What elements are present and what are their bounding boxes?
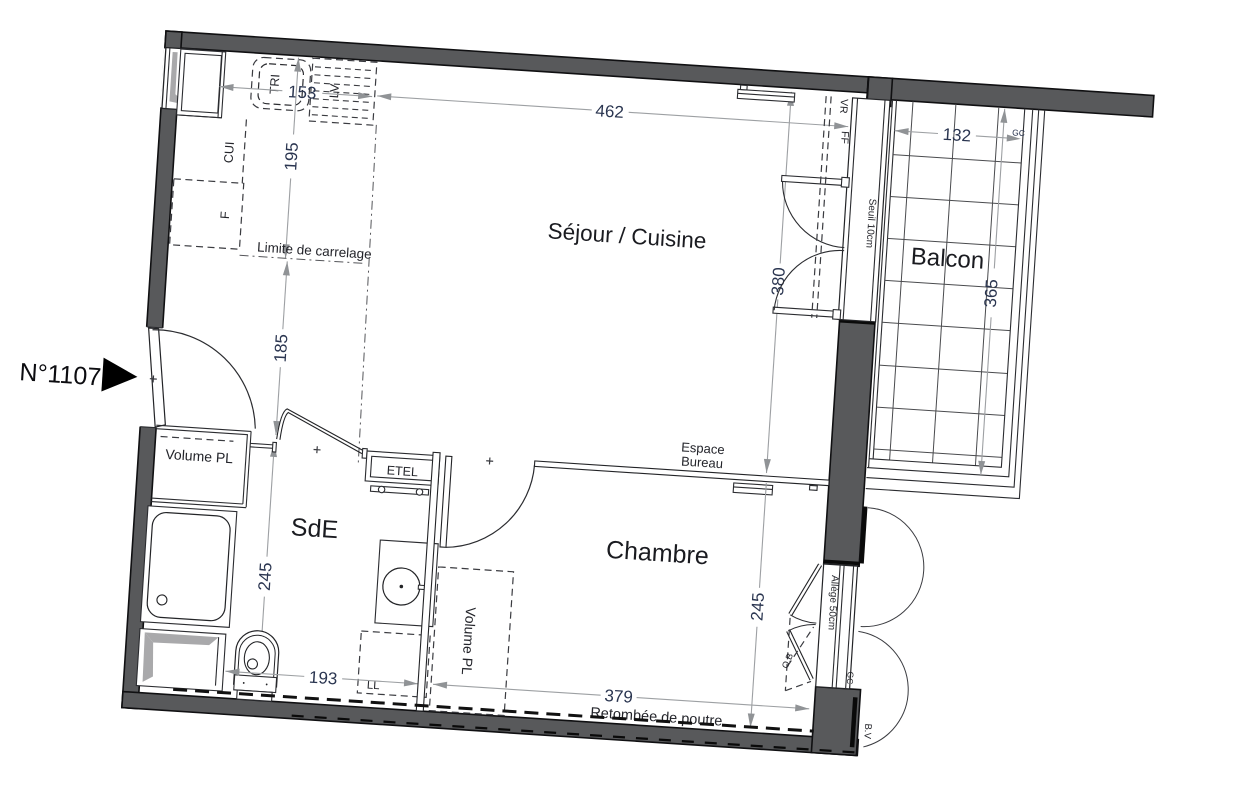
svg-text:Volume PL: Volume PL	[458, 607, 478, 676]
svg-text:245: 245	[747, 592, 768, 622]
svg-text:185: 185	[270, 333, 291, 363]
svg-text:TRI: TRI	[267, 74, 282, 95]
svg-text:LV: LV	[326, 83, 341, 99]
svg-text:Séjour / Cuisine: Séjour / Cuisine	[546, 218, 706, 253]
svg-text:132: 132	[942, 125, 972, 146]
svg-text:379: 379	[603, 686, 633, 707]
svg-text:FF: FF	[838, 131, 851, 145]
svg-text:245: 245	[254, 562, 275, 592]
svg-text:F: F	[217, 211, 231, 220]
svg-text:Volume PL: Volume PL	[164, 446, 233, 466]
svg-text:O.B: O.B	[779, 652, 794, 670]
svg-text:GC: GC	[1011, 127, 1024, 138]
svg-text:Limite de carrelage: Limite de carrelage	[256, 239, 372, 261]
svg-text:Balcon: Balcon	[910, 243, 985, 275]
svg-text:153: 153	[287, 82, 317, 103]
svg-text:ETEL: ETEL	[386, 463, 418, 479]
svg-text:GC: GC	[844, 671, 855, 684]
svg-text:SdE: SdE	[290, 513, 339, 544]
svg-text:Chambre: Chambre	[605, 536, 709, 571]
svg-text:CUI: CUI	[221, 141, 236, 163]
svg-text:VR: VR	[837, 99, 850, 115]
svg-text:B.V: B.V	[861, 723, 873, 740]
svg-text:365: 365	[980, 279, 1001, 309]
svg-text:193: 193	[308, 668, 338, 689]
svg-text:N°1107: N°1107	[18, 358, 101, 391]
svg-text:462: 462	[594, 101, 624, 122]
svg-text:195: 195	[281, 142, 302, 172]
svg-text:Bureau: Bureau	[680, 453, 723, 471]
